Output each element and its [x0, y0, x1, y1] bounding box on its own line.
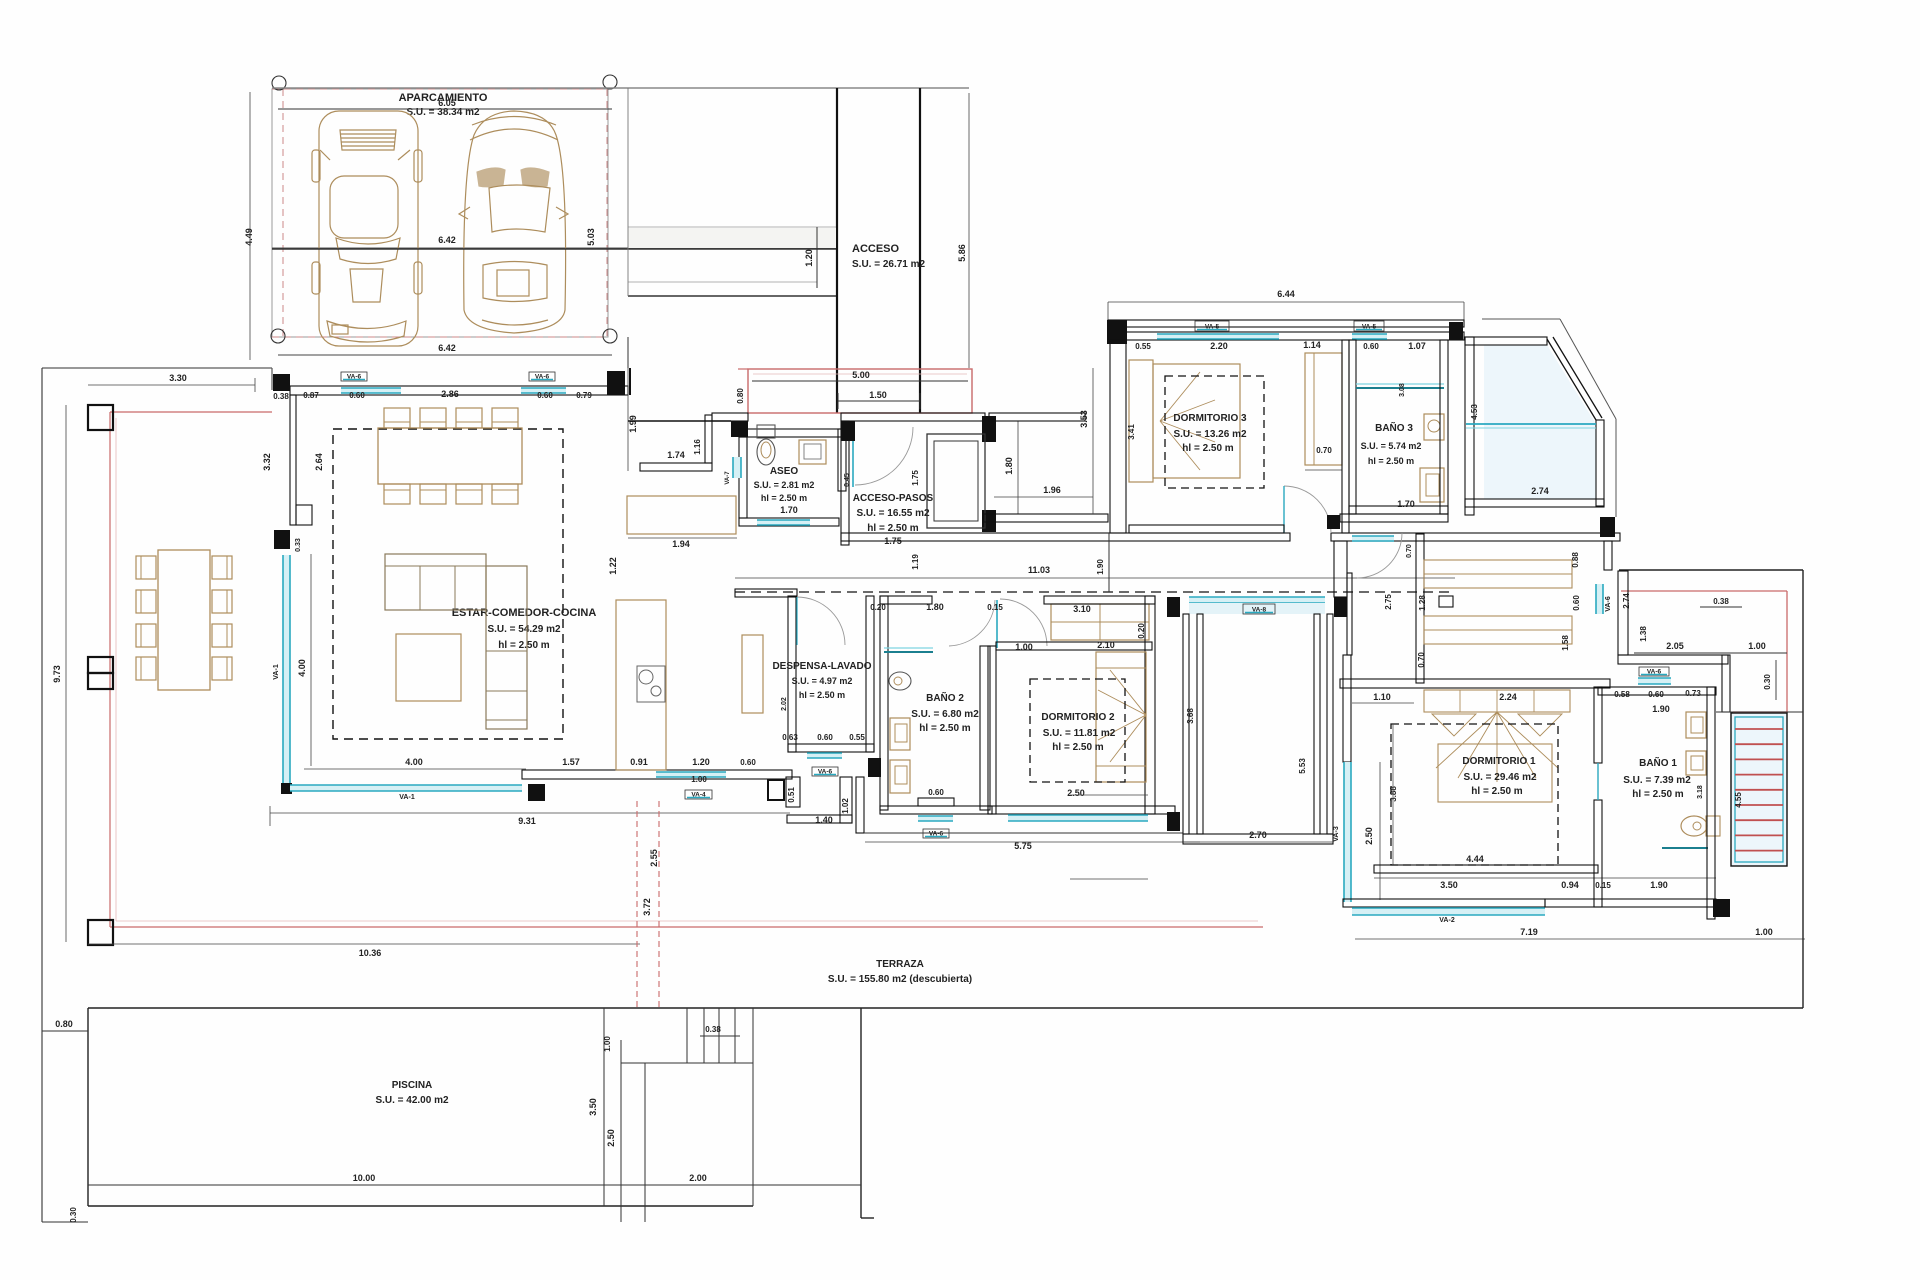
- svg-text:VA-5: VA-5: [1362, 324, 1377, 331]
- svg-text:2.24: 2.24: [1499, 692, 1517, 702]
- svg-text:hl = 2.50 m: hl = 2.50 m: [919, 723, 971, 734]
- svg-text:5.53: 5.53: [1298, 758, 1307, 774]
- svg-text:S.U. = 6.80 m2: S.U. = 6.80 m2: [911, 709, 979, 720]
- svg-text:TERRAZA: TERRAZA: [876, 959, 924, 970]
- svg-text:0.60: 0.60: [349, 391, 365, 400]
- svg-text:6.44: 6.44: [1277, 289, 1295, 299]
- svg-text:4.44: 4.44: [1466, 854, 1484, 864]
- svg-text:2.20: 2.20: [1210, 341, 1228, 351]
- svg-text:VA-3: VA-3: [1333, 826, 1340, 842]
- svg-text:1.00: 1.00: [691, 775, 707, 784]
- svg-text:6.42: 6.42: [438, 343, 456, 353]
- svg-text:0.63: 0.63: [782, 733, 798, 742]
- svg-text:0.38: 0.38: [273, 392, 289, 401]
- svg-text:0.60: 0.60: [740, 758, 756, 767]
- svg-text:S.U. = 11.81 m2: S.U. = 11.81 m2: [1043, 728, 1116, 739]
- svg-text:1.90: 1.90: [1652, 704, 1670, 714]
- svg-text:S.U. = 7.39 m2: S.U. = 7.39 m2: [1623, 775, 1691, 786]
- svg-text:2.50: 2.50: [1364, 827, 1374, 845]
- svg-text:2.05: 2.05: [1666, 641, 1684, 651]
- svg-text:VA-6: VA-6: [1647, 669, 1662, 676]
- svg-text:1.00: 1.00: [603, 1036, 612, 1052]
- svg-text:DESPENSA-LAVADO: DESPENSA-LAVADO: [772, 661, 871, 672]
- svg-text:VA-6: VA-6: [1605, 596, 1612, 612]
- svg-text:2.50: 2.50: [606, 1129, 616, 1147]
- svg-text:7.19: 7.19: [1520, 927, 1538, 937]
- svg-text:0.70: 0.70: [1417, 652, 1426, 668]
- svg-text:hl = 2.50 m: hl = 2.50 m: [498, 640, 550, 651]
- svg-text:1.07: 1.07: [1408, 341, 1426, 351]
- svg-text:0.20: 0.20: [1137, 623, 1146, 639]
- svg-text:0.73: 0.73: [1685, 689, 1701, 698]
- svg-text:0.80: 0.80: [736, 388, 745, 404]
- svg-text:2.10: 2.10: [1097, 640, 1115, 650]
- svg-text:3.32: 3.32: [262, 453, 272, 471]
- svg-text:S.U. = 16.55 m2: S.U. = 16.55 m2: [856, 508, 930, 519]
- svg-text:3.30: 3.30: [169, 373, 187, 383]
- svg-text:3.08: 3.08: [1399, 383, 1406, 397]
- svg-text:5.75: 5.75: [1014, 841, 1032, 851]
- svg-text:1.28: 1.28: [1418, 595, 1427, 611]
- svg-text:1.90: 1.90: [1096, 559, 1105, 575]
- svg-text:9.31: 9.31: [518, 816, 536, 826]
- svg-text:5.03: 5.03: [586, 228, 596, 246]
- svg-text:6.42: 6.42: [438, 235, 456, 245]
- svg-text:1.19: 1.19: [911, 554, 920, 570]
- svg-text:0.15: 0.15: [987, 603, 1003, 612]
- svg-text:0.60: 0.60: [537, 391, 553, 400]
- svg-text:0.88: 0.88: [1571, 552, 1580, 568]
- svg-text:VA-1: VA-1: [273, 664, 280, 680]
- svg-text:1.94: 1.94: [672, 539, 690, 549]
- svg-text:1.70: 1.70: [1397, 499, 1415, 509]
- svg-text:1.22: 1.22: [608, 557, 618, 575]
- svg-text:1.00: 1.00: [1015, 642, 1033, 652]
- svg-text:5.00: 5.00: [852, 370, 870, 380]
- svg-text:0.30: 0.30: [1763, 674, 1772, 690]
- svg-text:VA-4: VA-4: [691, 792, 706, 799]
- svg-text:1.14: 1.14: [1303, 340, 1321, 350]
- svg-text:VA-8: VA-8: [1252, 607, 1267, 614]
- svg-text:hl = 2.50 m: hl = 2.50 m: [1471, 786, 1523, 797]
- svg-text:0.94: 0.94: [1561, 880, 1579, 890]
- svg-text:VA-2: VA-2: [1439, 917, 1455, 924]
- svg-text:3.50: 3.50: [1440, 880, 1458, 890]
- svg-text:S.U. = 4.97 m2: S.U. = 4.97 m2: [792, 676, 853, 686]
- svg-text:DORMITORIO 3: DORMITORIO 3: [1173, 413, 1247, 424]
- svg-text:3.53: 3.53: [1079, 410, 1089, 428]
- svg-text:9.73: 9.73: [52, 665, 62, 683]
- svg-text:VA-6: VA-6: [929, 831, 944, 838]
- svg-text:0.51: 0.51: [787, 787, 796, 803]
- svg-text:10.36: 10.36: [359, 948, 382, 958]
- svg-text:1.80: 1.80: [926, 602, 944, 612]
- svg-text:0.87: 0.87: [303, 391, 319, 400]
- svg-text:S.U. = 2.81 m2: S.U. = 2.81 m2: [754, 480, 815, 490]
- svg-text:1.40: 1.40: [815, 815, 833, 825]
- svg-text:2.75: 2.75: [1384, 594, 1393, 610]
- svg-text:VA-6: VA-6: [535, 374, 550, 381]
- svg-text:0.15: 0.15: [1595, 881, 1611, 890]
- svg-text:1.50: 1.50: [869, 390, 887, 400]
- svg-text:4.00: 4.00: [297, 659, 307, 677]
- svg-text:4.00: 4.00: [405, 757, 423, 767]
- svg-text:0.79: 0.79: [576, 391, 592, 400]
- svg-text:S.U. = 29.46 m2: S.U. = 29.46 m2: [1463, 772, 1537, 783]
- svg-text:1.02: 1.02: [841, 798, 850, 814]
- svg-text:1.74: 1.74: [667, 450, 685, 460]
- svg-text:hl = 2.50 m: hl = 2.50 m: [761, 493, 807, 503]
- svg-text:DORMITORIO 2: DORMITORIO 2: [1041, 712, 1115, 723]
- svg-text:1.10: 1.10: [1373, 692, 1391, 702]
- svg-text:4.49: 4.49: [244, 228, 254, 246]
- svg-text:hl = 2.50 m: hl = 2.50 m: [867, 523, 919, 534]
- svg-text:1.75: 1.75: [911, 470, 920, 486]
- svg-text:0.30: 0.30: [69, 1207, 78, 1223]
- svg-text:4.55: 4.55: [1734, 792, 1743, 808]
- svg-text:S.U. = 42.00 m2: S.U. = 42.00 m2: [375, 1095, 449, 1106]
- svg-text:hl = 2.50 m: hl = 2.50 m: [799, 690, 845, 700]
- svg-text:1.57: 1.57: [562, 757, 580, 767]
- svg-text:0.60: 0.60: [817, 733, 833, 742]
- svg-text:1.90: 1.90: [1650, 880, 1668, 890]
- svg-text:0.60: 0.60: [1572, 595, 1581, 611]
- svg-text:hl = 2.50 m: hl = 2.50 m: [1632, 789, 1684, 800]
- svg-text:10.00: 10.00: [353, 1173, 376, 1183]
- svg-text:1.20: 1.20: [804, 249, 814, 267]
- svg-text:2.74: 2.74: [1531, 486, 1549, 496]
- svg-text:S.U. = 13.26 m2: S.U. = 13.26 m2: [1173, 429, 1247, 440]
- svg-text:0.58: 0.58: [1614, 690, 1630, 699]
- svg-text:2.70: 2.70: [1249, 830, 1267, 840]
- svg-text:1.16: 1.16: [693, 439, 702, 455]
- svg-text:2.55: 2.55: [649, 849, 659, 867]
- svg-text:1.38: 1.38: [1639, 626, 1648, 642]
- svg-text:0.80: 0.80: [55, 1019, 73, 1029]
- svg-text:S.U. = 155.80 m2 (descubierta): S.U. = 155.80 m2 (descubierta): [828, 974, 972, 985]
- svg-text:hl = 2.50 m: hl = 2.50 m: [1182, 443, 1234, 454]
- svg-text:1.58: 1.58: [1561, 635, 1570, 651]
- svg-text:3.18: 3.18: [1697, 785, 1704, 799]
- svg-text:2.00: 2.00: [689, 1173, 707, 1183]
- svg-text:1.20: 1.20: [692, 757, 710, 767]
- svg-text:0.55: 0.55: [849, 733, 865, 742]
- svg-text:VA-6: VA-6: [818, 769, 833, 776]
- svg-text:2.74: 2.74: [1622, 593, 1631, 609]
- svg-text:VA-7: VA-7: [725, 471, 731, 485]
- svg-text:0.91: 0.91: [630, 757, 648, 767]
- svg-text:1.96: 1.96: [1043, 485, 1061, 495]
- svg-text:1.99: 1.99: [628, 415, 638, 433]
- svg-text:2.86: 2.86: [441, 389, 459, 399]
- svg-text:2.50: 2.50: [1067, 788, 1085, 798]
- svg-text:6.05: 6.05: [438, 98, 456, 108]
- svg-text:0.60: 0.60: [1363, 342, 1379, 351]
- svg-text:S.U. = 5.74 m2: S.U. = 5.74 m2: [1361, 441, 1422, 451]
- svg-text:0.38: 0.38: [705, 1025, 721, 1034]
- svg-text:3.68: 3.68: [1186, 708, 1195, 724]
- svg-text:VA-6: VA-6: [347, 374, 362, 381]
- svg-text:ACCESO: ACCESO: [852, 243, 900, 255]
- svg-text:3.41: 3.41: [1127, 424, 1136, 440]
- svg-text:BAÑO 3: BAÑO 3: [1375, 421, 1413, 434]
- svg-text:3.72: 3.72: [642, 898, 652, 916]
- svg-text:1.00: 1.00: [1748, 641, 1766, 651]
- svg-text:BAÑO 2: BAÑO 2: [926, 691, 964, 704]
- svg-text:4.53: 4.53: [1470, 404, 1479, 420]
- svg-text:DORMITORIO 1: DORMITORIO 1: [1462, 756, 1536, 767]
- svg-text:0.70: 0.70: [1406, 544, 1413, 558]
- svg-text:1.00: 1.00: [1755, 927, 1773, 937]
- svg-text:3.50: 3.50: [588, 1098, 598, 1116]
- svg-text:ASEO: ASEO: [770, 466, 799, 477]
- svg-text:2.64: 2.64: [314, 453, 324, 471]
- svg-text:0.20: 0.20: [870, 603, 886, 612]
- svg-text:0.38: 0.38: [1713, 597, 1729, 606]
- svg-text:hl = 2.50 m: hl = 2.50 m: [1052, 742, 1104, 753]
- svg-text:0.60: 0.60: [928, 788, 944, 797]
- svg-text:VA-1: VA-1: [399, 794, 415, 801]
- svg-text:5.86: 5.86: [957, 244, 967, 262]
- svg-text:3.88: 3.88: [1389, 786, 1398, 802]
- svg-text:S.U. = 26.71 m2: S.U. = 26.71 m2: [852, 259, 926, 270]
- svg-text:PISCINA: PISCINA: [392, 1080, 433, 1091]
- svg-text:2.02: 2.02: [781, 697, 788, 711]
- svg-text:1.80: 1.80: [1004, 457, 1014, 475]
- svg-text:0.33: 0.33: [295, 538, 302, 552]
- svg-text:VA-5: VA-5: [1205, 324, 1220, 331]
- svg-text:11.03: 11.03: [1028, 565, 1050, 575]
- svg-text:ESTAR-COMEDOR-COCINA: ESTAR-COMEDOR-COCINA: [452, 607, 597, 619]
- svg-text:0.70: 0.70: [1316, 446, 1332, 455]
- svg-text:1.70: 1.70: [780, 505, 798, 515]
- svg-text:0.60: 0.60: [1648, 690, 1664, 699]
- svg-text:3.10: 3.10: [1073, 604, 1091, 614]
- svg-text:ACCESO-PASOS: ACCESO-PASOS: [853, 493, 934, 504]
- svg-text:hl = 2.50 m: hl = 2.50 m: [1368, 456, 1414, 466]
- svg-text:0.55: 0.55: [1135, 342, 1151, 351]
- svg-text:0.45: 0.45: [844, 473, 851, 487]
- svg-text:BAÑO 1: BAÑO 1: [1639, 756, 1677, 769]
- svg-text:S.U. = 54.29 m2: S.U. = 54.29 m2: [487, 624, 561, 635]
